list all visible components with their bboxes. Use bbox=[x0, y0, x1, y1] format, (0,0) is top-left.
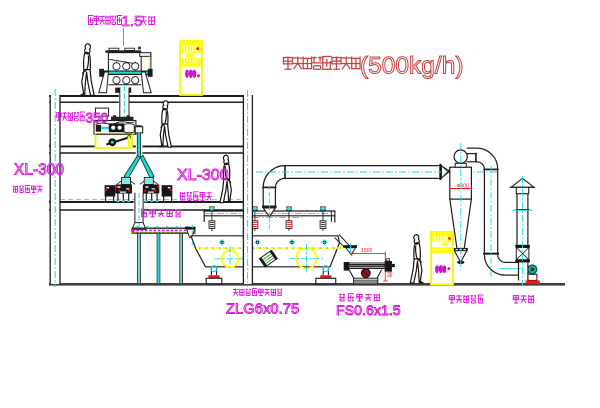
svg-text:FS0.6x1.5: FS0.6x1.5 bbox=[336, 303, 401, 319]
svg-text:ZLG6x0.75: ZLG6x0.75 bbox=[226, 302, 299, 318]
svg-text:XL-300: XL-300 bbox=[177, 167, 229, 184]
svg-text:XL-300: XL-300 bbox=[14, 162, 64, 179]
svg-text:350: 350 bbox=[86, 111, 109, 126]
svg-text:1.5: 1.5 bbox=[122, 13, 143, 30]
svg-text:(500kg/h): (500kg/h) bbox=[360, 53, 464, 80]
